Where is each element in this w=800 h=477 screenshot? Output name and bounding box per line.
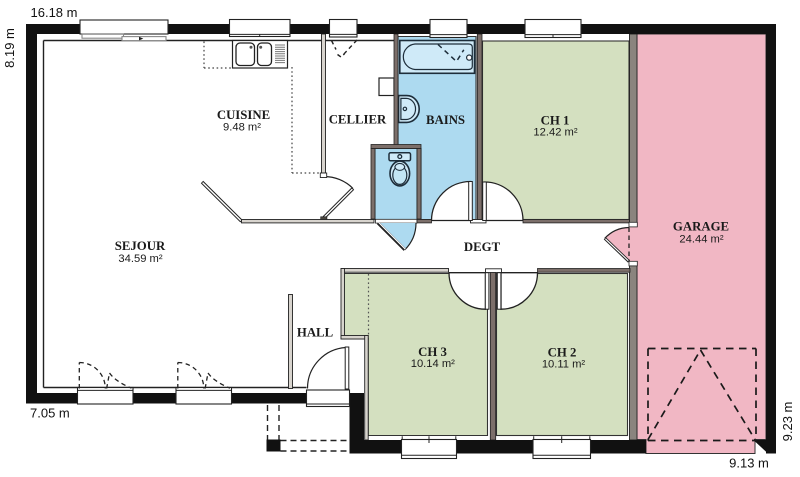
svg-text:9.13 m: 9.13 m [729,456,769,471]
svg-text:34.59 m²: 34.59 m² [118,253,162,265]
svg-text:BAINS: BAINS [426,113,465,127]
svg-text:10.11 m²: 10.11 m² [542,358,586,370]
svg-text:CH 1: CH 1 [541,114,570,128]
svg-text:CH 2: CH 2 [548,345,577,359]
svg-text:CELLIER: CELLIER [329,113,387,127]
svg-text:CUISINE: CUISINE [217,108,270,122]
svg-text:DEGT: DEGT [464,240,501,254]
svg-text:9.48 m²: 9.48 m² [223,122,261,134]
svg-text:HALL: HALL [297,326,333,340]
svg-text:24.44 m²: 24.44 m² [679,234,723,246]
svg-text:GARAGE: GARAGE [673,220,729,234]
svg-text:9.23 m: 9.23 m [780,402,795,442]
svg-text:8.19 m: 8.19 m [2,28,17,68]
svg-text:10.14 m²: 10.14 m² [411,358,455,370]
svg-text:7.05 m: 7.05 m [30,406,70,421]
svg-text:SEJOUR: SEJOUR [115,239,166,253]
svg-text:12.42 m²: 12.42 m² [533,127,577,139]
svg-text:16.18 m: 16.18 m [31,5,78,20]
svg-text:CH 3: CH 3 [418,345,447,359]
